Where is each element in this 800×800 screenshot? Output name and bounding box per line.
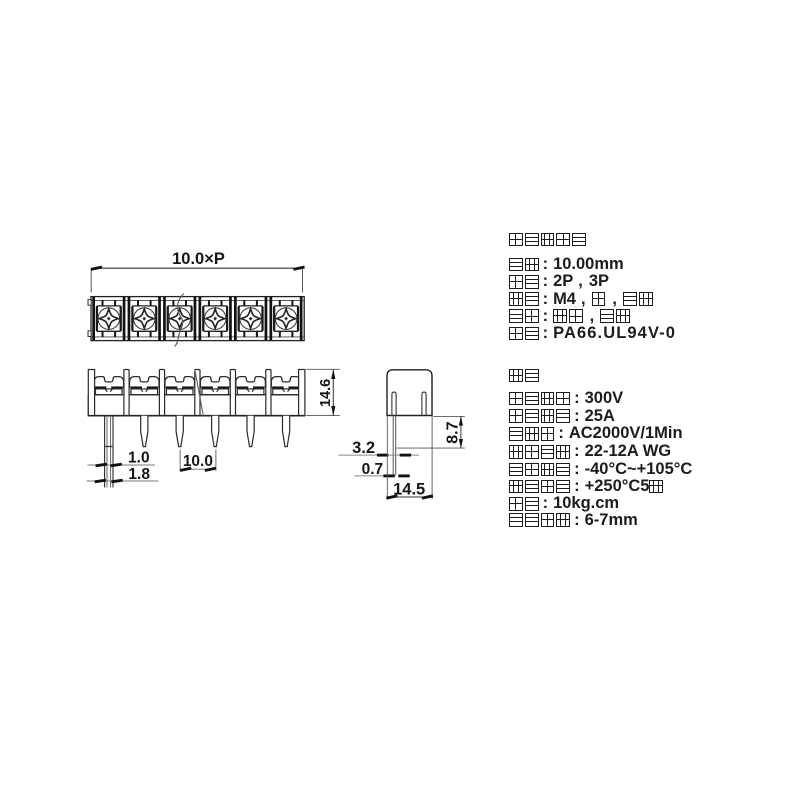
svg-text:14.6: 14.6 <box>318 379 334 407</box>
svg-text:1.0: 1.0 <box>128 449 150 466</box>
svg-text:10.0: 10.0 <box>183 453 213 470</box>
svg-text:1.8: 1.8 <box>128 466 150 483</box>
svg-text:8.7: 8.7 <box>445 421 462 443</box>
svg-text:14.5: 14.5 <box>393 481 425 499</box>
svg-text:0.7: 0.7 <box>362 461 384 478</box>
svg-text:3.2: 3.2 <box>352 439 375 457</box>
svg-text:10.0×P: 10.0×P <box>172 250 225 268</box>
